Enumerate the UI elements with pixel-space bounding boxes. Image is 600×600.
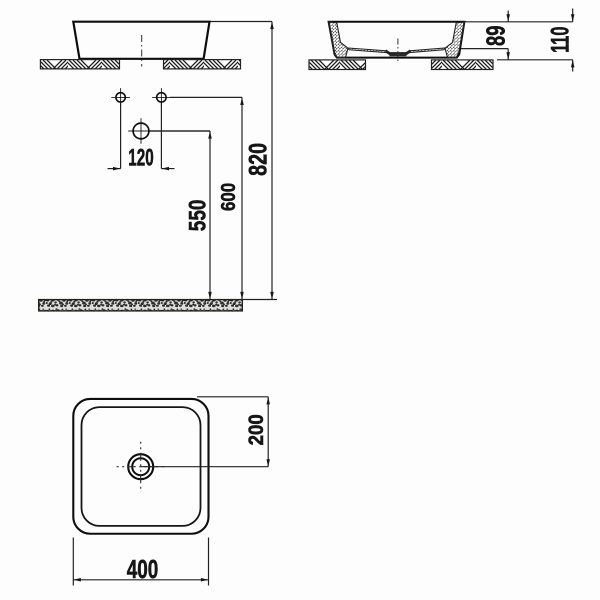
svg-text:600: 600 <box>218 183 240 211</box>
svg-text:89: 89 <box>483 26 511 47</box>
svg-text:400: 400 <box>127 554 159 584</box>
svg-text:550: 550 <box>184 200 211 232</box>
svg-text:200: 200 <box>243 414 268 445</box>
svg-text:820: 820 <box>245 143 272 176</box>
svg-text:110: 110 <box>546 27 574 53</box>
svg-text:120: 120 <box>128 144 153 171</box>
